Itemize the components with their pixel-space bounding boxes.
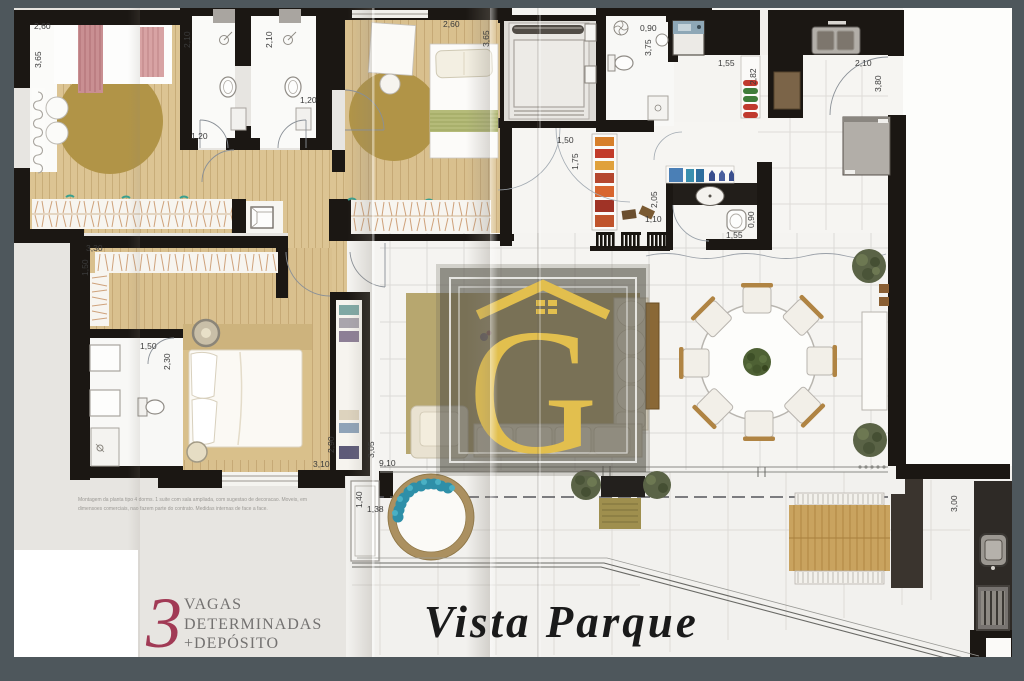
svg-text:1,20: 1,20 bbox=[191, 131, 208, 141]
svg-text:DETERMINADAS: DETERMINADAS bbox=[184, 616, 322, 633]
svg-text:1,55: 1,55 bbox=[726, 230, 743, 240]
svg-text:2,90: 2,90 bbox=[326, 436, 336, 453]
svg-text:Montagem da planta tipo 4 dorm: Montagem da planta tipo 4 dorms. 1 suite… bbox=[78, 497, 307, 503]
svg-text:2,10: 2,10 bbox=[855, 58, 872, 68]
svg-text:2,30: 2,30 bbox=[162, 353, 172, 370]
svg-text:1,20: 1,20 bbox=[300, 95, 317, 105]
svg-text:1,38: 1,38 bbox=[367, 504, 384, 514]
svg-text:1,50: 1,50 bbox=[80, 259, 90, 276]
svg-text:2,05: 2,05 bbox=[649, 191, 659, 208]
svg-text:2,82: 2,82 bbox=[748, 68, 758, 85]
svg-text:9,10: 9,10 bbox=[379, 458, 396, 468]
svg-text:3: 3 bbox=[145, 583, 182, 663]
svg-text:2,10: 2,10 bbox=[264, 31, 274, 48]
svg-text:3,65: 3,65 bbox=[481, 30, 491, 47]
svg-text:1,10: 1,10 bbox=[645, 214, 662, 224]
svg-text:3,80: 3,80 bbox=[873, 75, 883, 92]
svg-text:VAGAS: VAGAS bbox=[184, 596, 242, 613]
svg-text:1,50: 1,50 bbox=[557, 135, 574, 145]
svg-text:3,75: 3,75 bbox=[643, 39, 653, 56]
svg-text:1,75: 1,75 bbox=[570, 153, 580, 170]
svg-text:2,10: 2,10 bbox=[182, 31, 192, 48]
svg-text:1,55: 1,55 bbox=[718, 58, 735, 68]
svg-text:3,30: 3,30 bbox=[86, 243, 103, 253]
svg-text:3,00: 3,00 bbox=[949, 495, 959, 512]
svg-text:3,65: 3,65 bbox=[33, 51, 43, 68]
svg-text:2,60: 2,60 bbox=[443, 19, 460, 29]
svg-text:dimensoes comerciais, nao faze: dimensoes comerciais, nao fazem parte do… bbox=[78, 506, 268, 512]
svg-text:+DEPÓSITO: +DEPÓSITO bbox=[184, 633, 279, 652]
svg-text:3,05: 3,05 bbox=[366, 441, 376, 458]
svg-text:0,90: 0,90 bbox=[640, 23, 657, 33]
svg-text:1,40: 1,40 bbox=[354, 491, 364, 508]
svg-text:1,50: 1,50 bbox=[140, 341, 157, 351]
svg-text:2,60: 2,60 bbox=[34, 21, 51, 31]
svg-text:Vista Parque: Vista Parque bbox=[424, 597, 699, 647]
svg-text:3,10: 3,10 bbox=[313, 459, 330, 469]
svg-text:0,90: 0,90 bbox=[746, 211, 756, 228]
